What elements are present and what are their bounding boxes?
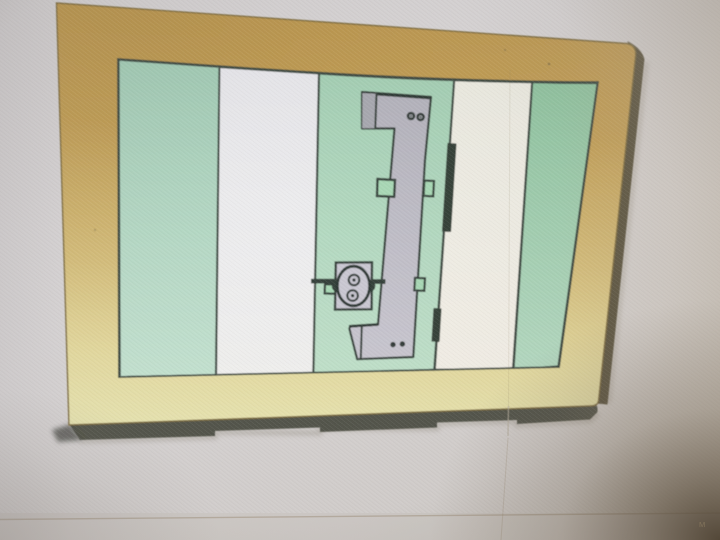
svg-text:M: M [699, 520, 705, 529]
